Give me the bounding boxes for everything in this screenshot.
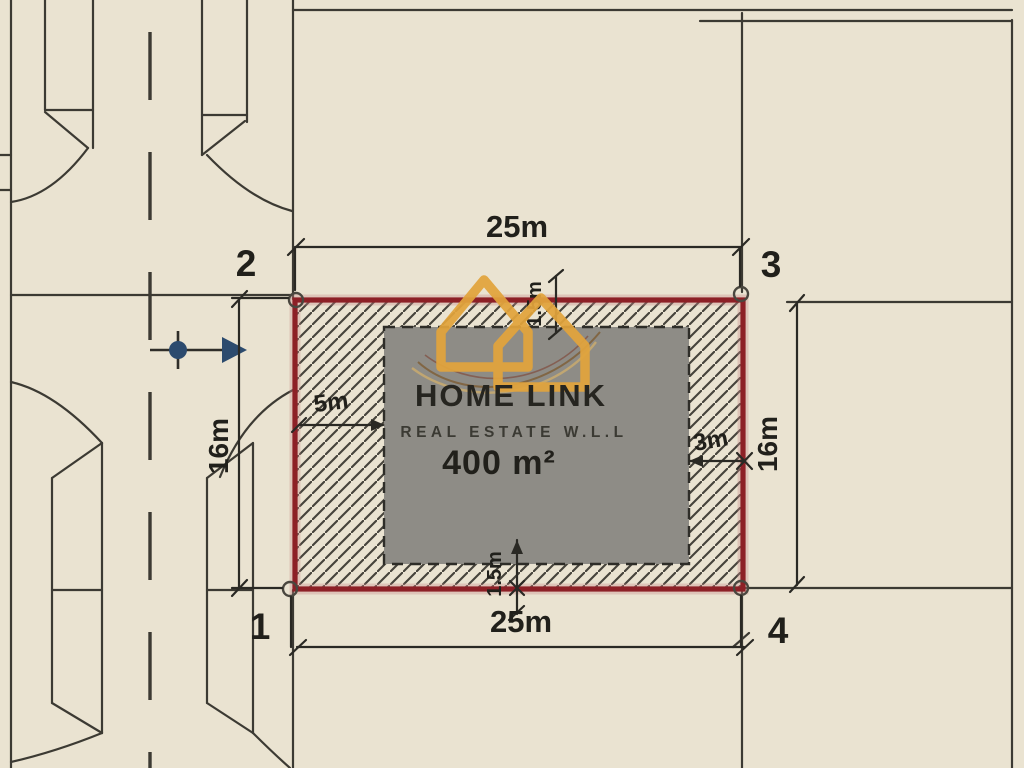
corner-label-1: 1 — [250, 606, 271, 647]
area-label: 400 m² — [442, 444, 556, 482]
dim-right-label: 16m — [752, 416, 783, 472]
setback-left-label: 5m — [312, 387, 350, 418]
corner-label-3: 3 — [761, 244, 782, 285]
dim-bottom-label: 25m — [490, 604, 552, 639]
brand-name: HOME LINK — [415, 378, 607, 413]
setback-bottom-label: 1.5m — [484, 551, 506, 597]
corner-label-4: 4 — [768, 610, 789, 651]
survey-point-icon — [169, 341, 187, 359]
dim-top-label: 25m — [486, 209, 548, 244]
brand-tagline: REAL ESTATE W.L.L — [400, 424, 627, 441]
dim-left-label: 16m — [203, 418, 234, 474]
corner-label-2: 2 — [236, 243, 257, 284]
site-plan-drawing: 25m 25m 16m 16m 5m 3m 1.5m 1.5m 2 3 1 4 … — [0, 0, 1024, 768]
